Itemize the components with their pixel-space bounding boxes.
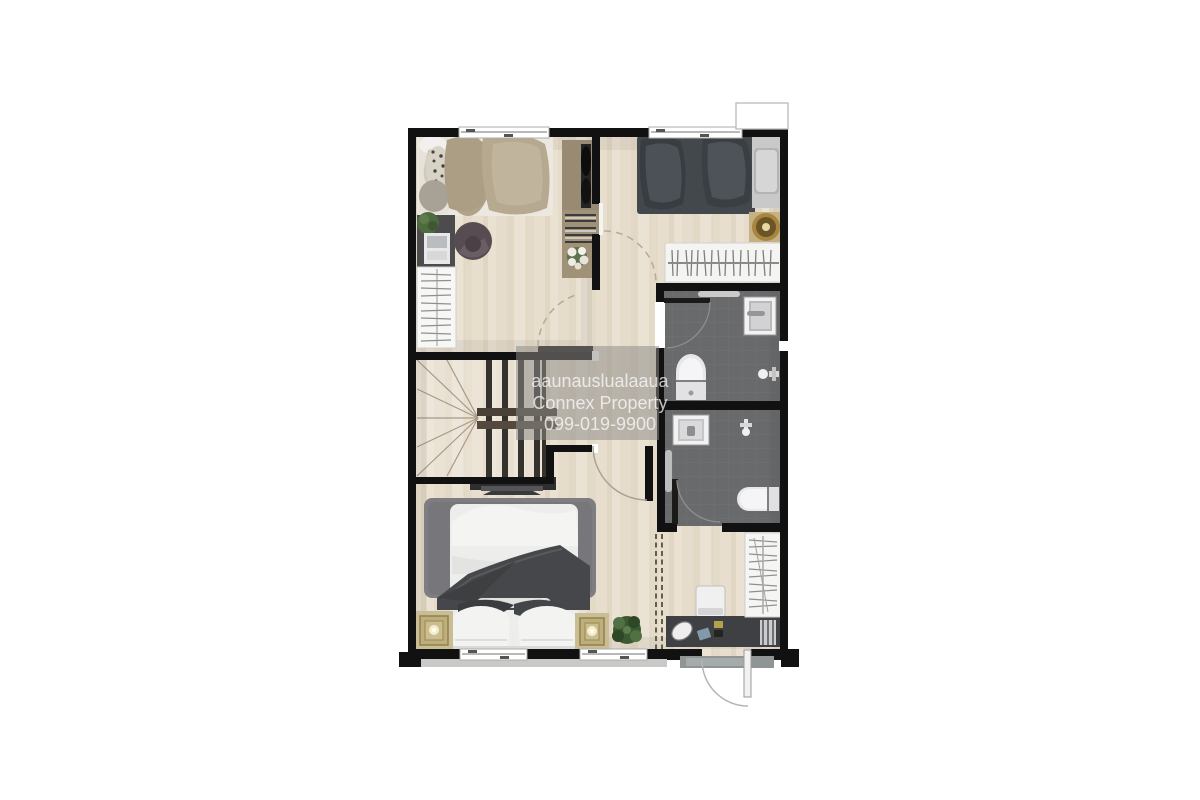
svg-text:aaunauslualaaua: aaunauslualaaua <box>531 371 669 391</box>
svg-text:Connex Property: Connex Property <box>532 393 667 413</box>
svg-text:099-019-9900: 099-019-9900 <box>544 414 656 434</box>
